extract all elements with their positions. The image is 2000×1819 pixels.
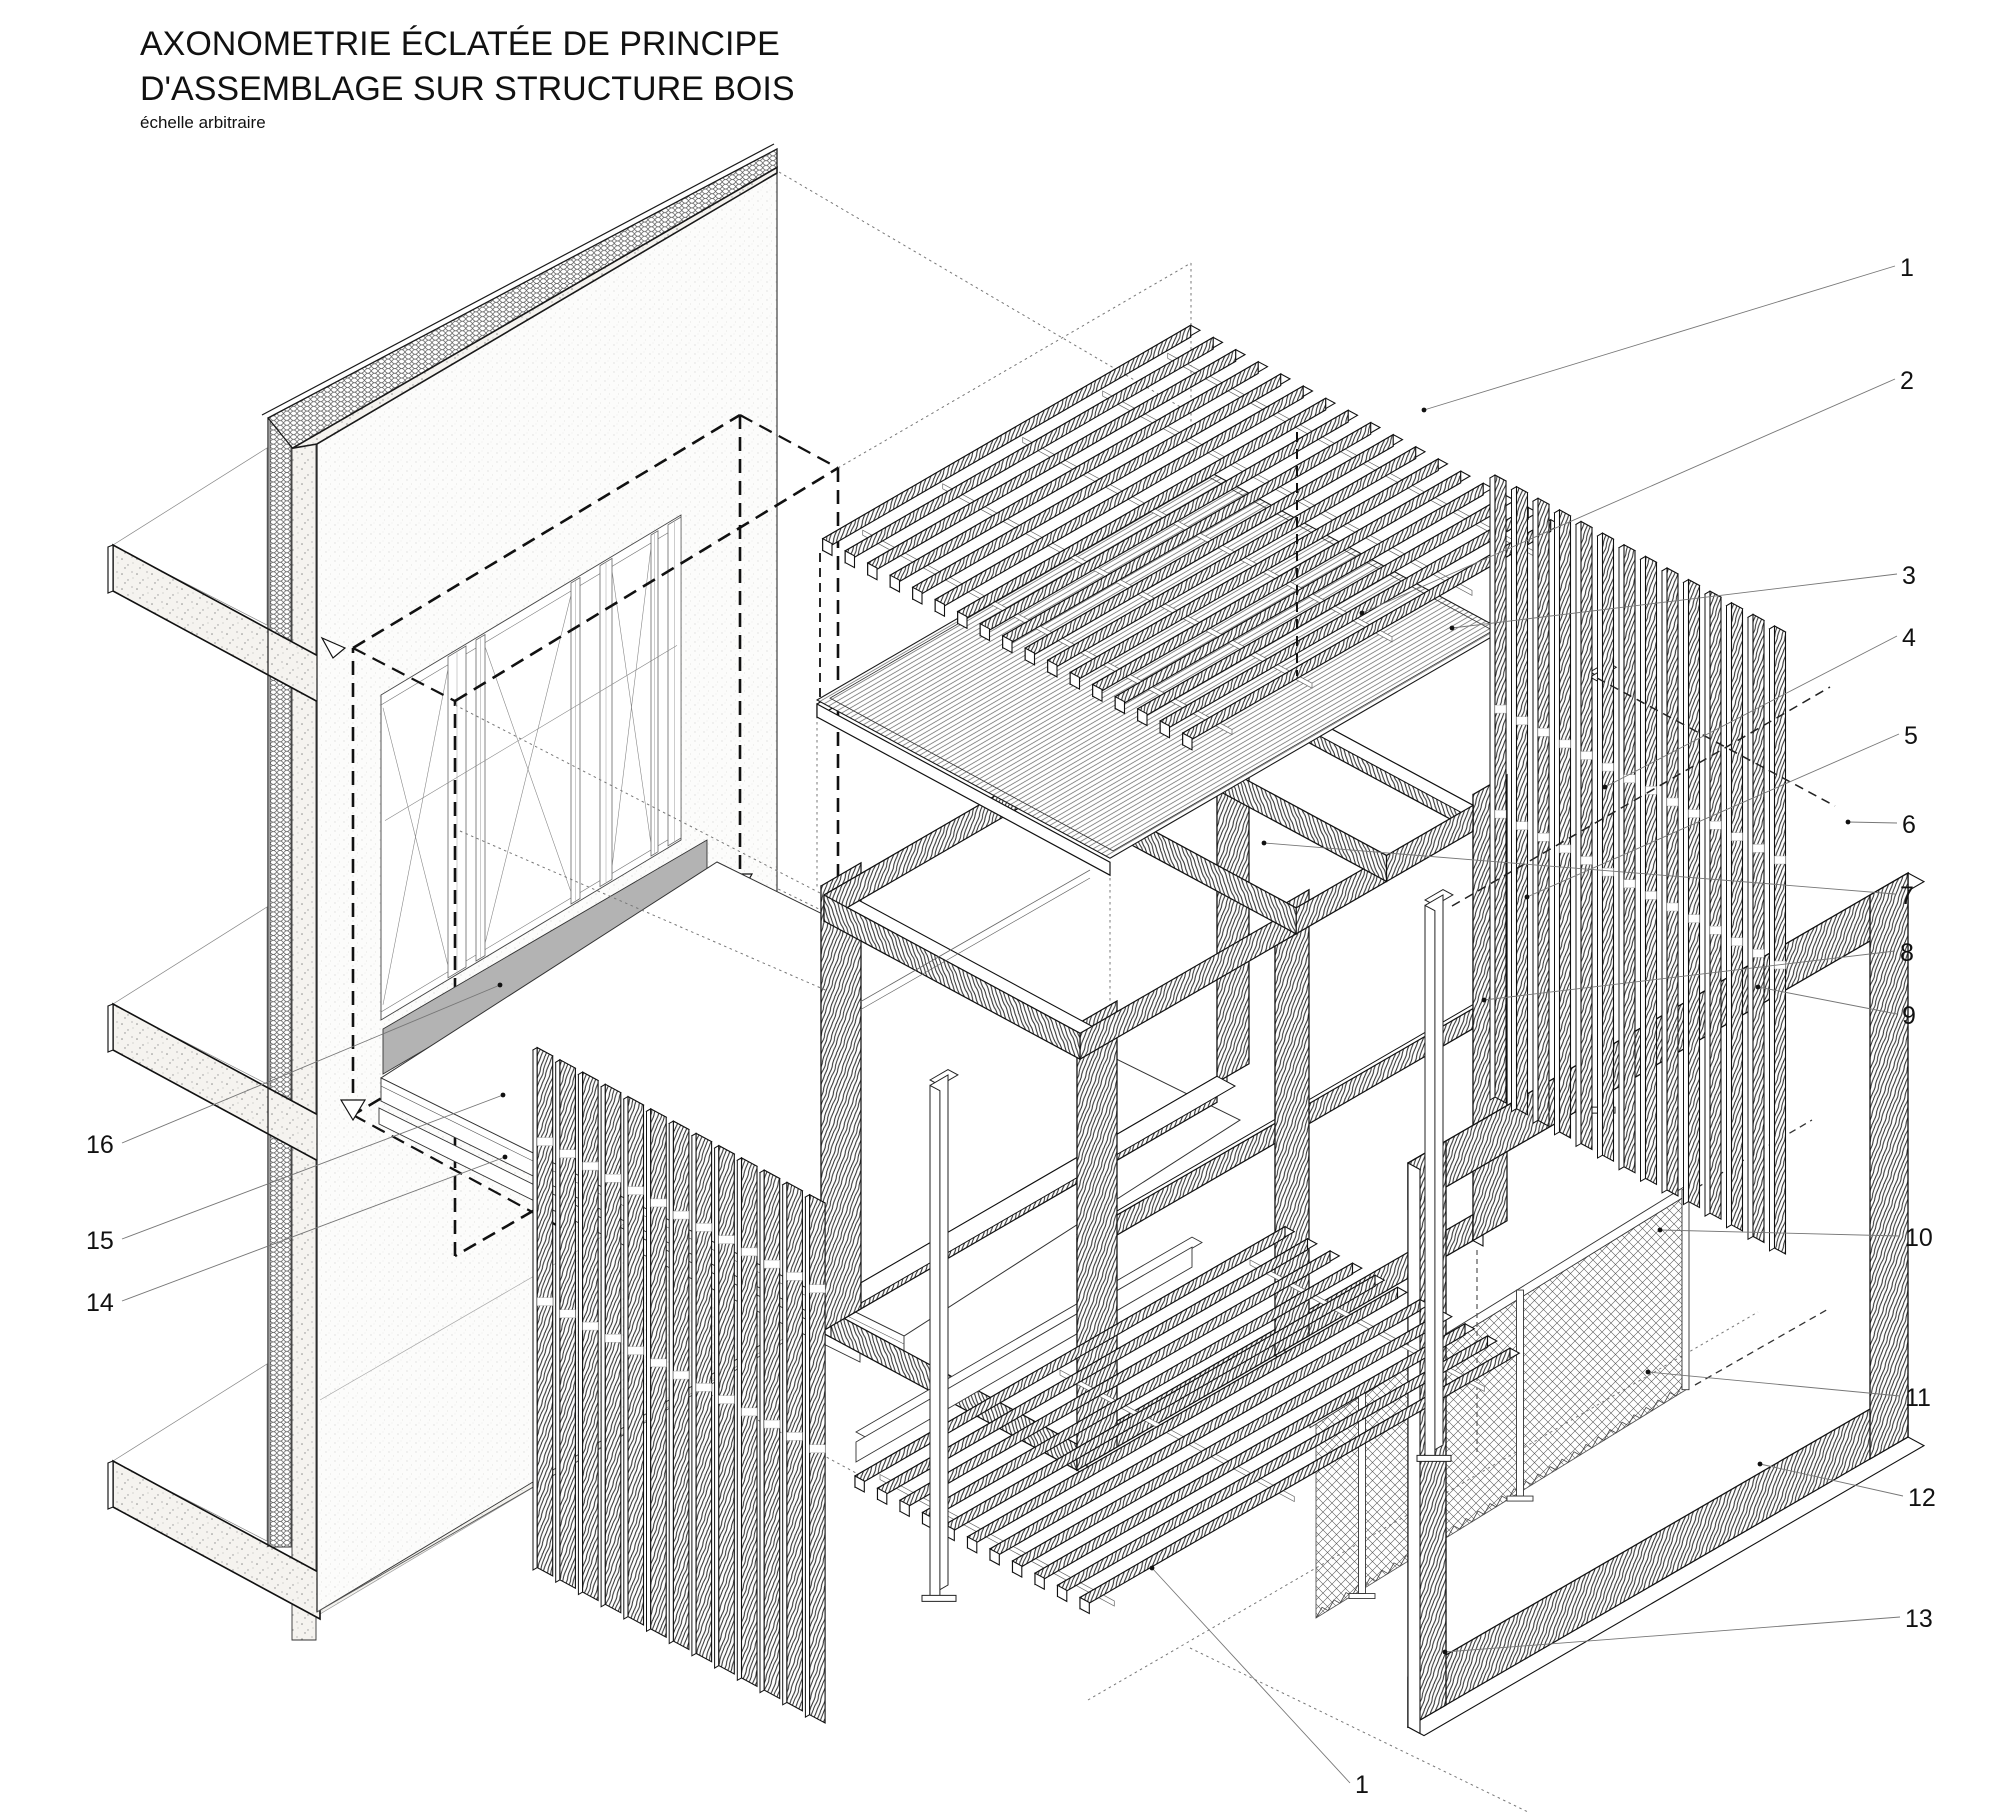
- svg-text:4: 4: [1902, 624, 1916, 652]
- svg-text:15: 15: [86, 1227, 114, 1255]
- svg-text:9: 9: [1902, 1002, 1916, 1030]
- svg-text:11: 11: [1905, 1384, 1931, 1412]
- svg-text:10: 10: [1905, 1224, 1933, 1252]
- svg-text:14: 14: [86, 1289, 114, 1317]
- svg-text:13: 13: [1905, 1605, 1933, 1633]
- svg-text:3: 3: [1902, 562, 1916, 590]
- svg-text:5: 5: [1904, 722, 1918, 750]
- svg-text:2: 2: [1900, 367, 1914, 395]
- svg-text:échelle arbitraire: échelle arbitraire: [140, 113, 266, 132]
- svg-text:12: 12: [1908, 1484, 1936, 1512]
- svg-text:D'ASSEMBLAGE SUR STRUCTURE BOI: D'ASSEMBLAGE SUR STRUCTURE BOIS: [140, 70, 795, 108]
- svg-text:6: 6: [1902, 811, 1916, 839]
- svg-text:7: 7: [1900, 882, 1914, 910]
- svg-text:16: 16: [86, 1131, 114, 1159]
- svg-text:1: 1: [1355, 1771, 1369, 1799]
- svg-text:AXONOMETRIE ÉCLATÉE DE PRINCIP: AXONOMETRIE ÉCLATÉE DE PRINCIPE: [140, 25, 780, 63]
- svg-text:1: 1: [1900, 254, 1914, 282]
- svg-text:8: 8: [1900, 939, 1914, 967]
